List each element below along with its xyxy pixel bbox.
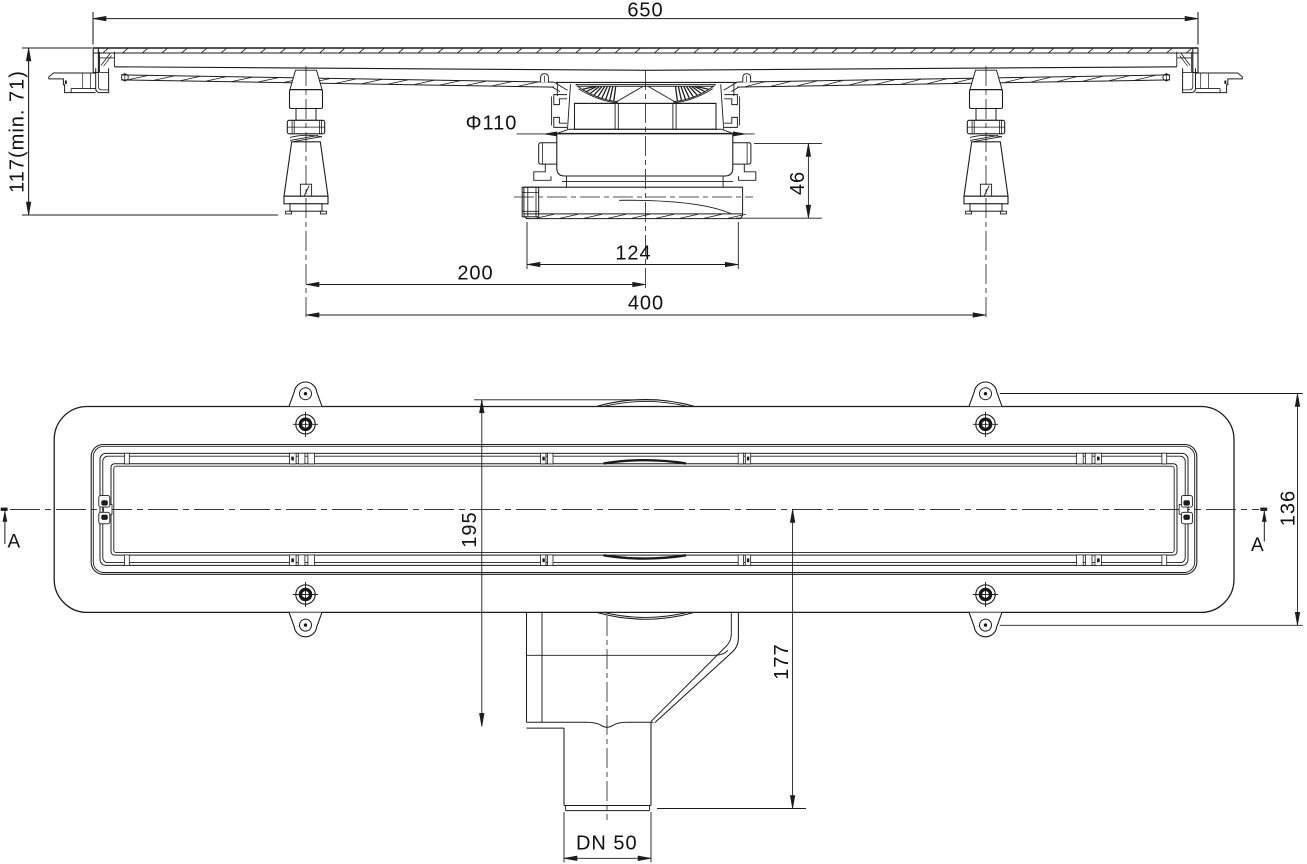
svg-text:650: 650 (627, 0, 663, 22)
svg-text:124: 124 (615, 243, 651, 265)
svg-text:46: 46 (787, 171, 809, 195)
svg-text:A: A (8, 532, 21, 553)
svg-text:Φ110: Φ110 (466, 112, 518, 134)
svg-text:136: 136 (1278, 490, 1300, 526)
svg-text:400: 400 (628, 293, 664, 315)
svg-text:177: 177 (771, 643, 793, 679)
svg-text:195: 195 (459, 511, 481, 547)
svg-text:117(min. 71): 117(min. 71) (7, 70, 29, 193)
svg-text:A: A (1251, 535, 1264, 556)
svg-text:200: 200 (457, 262, 493, 284)
svg-text:DN 50: DN 50 (576, 833, 638, 855)
